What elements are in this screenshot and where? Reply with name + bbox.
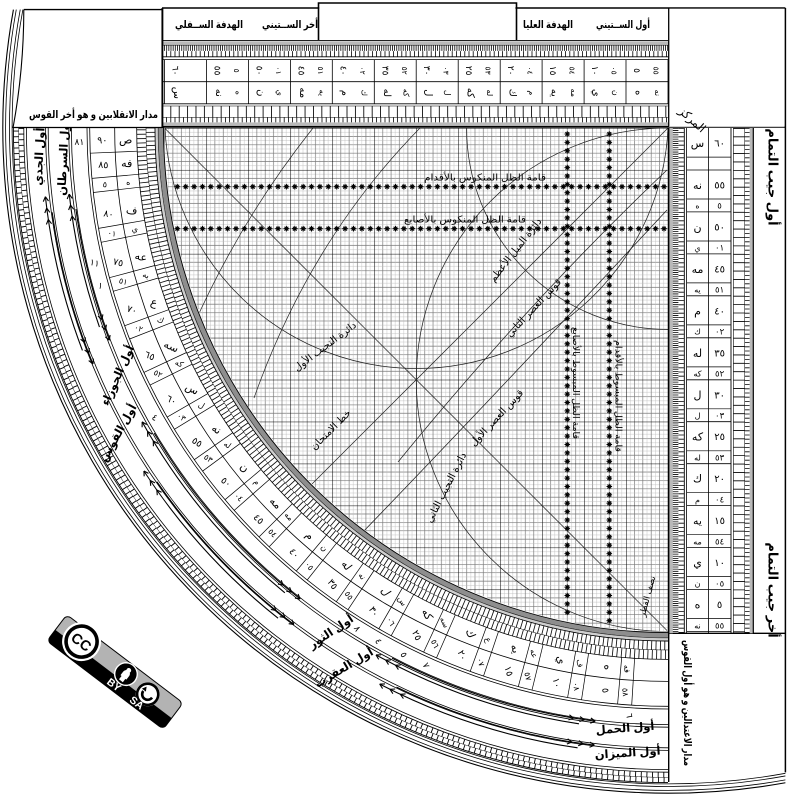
svg-text:٠١: ٠١ (107, 228, 117, 238)
svg-text:٤٥: ٤٥ (714, 264, 725, 275)
svg-text:٥٢: ٥٢ (400, 67, 409, 75)
svg-text:ل: ل (695, 412, 701, 421)
svg-text:٠٤: ٠٤ (715, 494, 724, 504)
svg-text:٤٠: ٤٠ (714, 306, 725, 317)
svg-text:كه: كه (693, 370, 701, 379)
svg-text:٩٠: ٩٠ (97, 135, 107, 146)
svg-text:ي: ي (693, 558, 702, 570)
svg-text:ه: ه (234, 91, 243, 95)
svg-text:م: م (527, 90, 536, 95)
svg-text:مدار الانقلابين و هو أخر القوس: مدار الانقلابين و هو أخر القوس (29, 107, 158, 121)
svg-text:٠٣: ٠٣ (715, 411, 725, 421)
svg-text:٦٠: ٦٠ (714, 139, 725, 150)
svg-text:ف: ف (575, 658, 585, 668)
svg-text:قامة الظل المبسوط بالأصابع: قامة الظل المبسوط بالأصابع (571, 327, 582, 439)
svg-text:أخر جيب التمام: أخر جيب التمام (765, 542, 782, 637)
svg-text:٣٠: ٣٠ (714, 390, 725, 401)
svg-text:٥: ٥ (632, 68, 642, 73)
svg-text:٥٣: ٥٣ (715, 453, 725, 463)
svg-text:١٥: ١٥ (548, 66, 558, 76)
svg-text:ه: ه (695, 600, 701, 612)
svg-text:ك: ك (694, 328, 701, 337)
svg-text:ه: ه (695, 202, 699, 211)
svg-text:ف: ف (125, 204, 138, 218)
svg-text:نه: نه (213, 89, 224, 97)
svg-text:قامة الظل المنكوس بالأصابع: قامة الظل المنكوس بالأصابع (404, 214, 526, 226)
svg-text:ن: ن (255, 89, 266, 96)
svg-text:١٠: ١٠ (590, 66, 600, 76)
svg-text:٥٥: ٥٥ (715, 620, 724, 630)
svg-text:له: له (485, 89, 494, 96)
svg-text:١٠: ١٠ (550, 677, 563, 689)
svg-text:ي: ي (591, 89, 602, 97)
svg-text:٢٥: ٢٥ (714, 432, 725, 443)
svg-text:٠٥: ٠٥ (610, 67, 619, 75)
svg-text:م: م (694, 306, 701, 318)
svg-text:كه: كه (692, 432, 704, 444)
svg-text:٨٥: ٨٥ (98, 160, 109, 172)
svg-text:له: له (693, 348, 702, 360)
svg-text:نه: نه (694, 621, 701, 630)
svg-text:٥: ٥ (102, 180, 107, 189)
svg-text:٥٥: ٥٥ (213, 66, 223, 76)
svg-text:ك: ك (359, 90, 368, 97)
svg-text:مه: مه (693, 537, 702, 546)
svg-text:أخر الســتيني: أخر الســتيني (262, 17, 318, 31)
svg-text:الهدفة العليا: الهدفة العليا (523, 19, 573, 31)
svg-text:٥٥: ٥٥ (714, 181, 725, 192)
svg-text:٥٣: ٥٣ (484, 67, 493, 75)
svg-text:٦: ٦ (624, 713, 634, 719)
svg-text:٥٨: ٥٨ (620, 688, 630, 698)
svg-text:٥٠: ٥٠ (254, 66, 264, 76)
svg-text:كه: كه (401, 89, 410, 97)
svg-text:ه: ه (126, 178, 131, 187)
svg-text:٥٤: ٥٤ (715, 536, 724, 546)
svg-text:٣٠: ٣٠ (422, 66, 432, 76)
svg-text:أول جيب التمام: أول جيب التمام (765, 128, 782, 225)
svg-text:٤٥: ٤٥ (296, 66, 306, 76)
svg-text:مه: مه (692, 264, 704, 276)
svg-text:م: م (339, 90, 350, 96)
svg-text:١٠: ١٠ (714, 558, 725, 569)
svg-text:٣٥: ٣٥ (380, 66, 390, 76)
svg-text:٥٢: ٥٢ (715, 369, 725, 379)
svg-text:قامة الظل المنكوس بالأقدام: قامة الظل المنكوس بالأقدام (424, 172, 546, 184)
svg-text:٢٠: ٢٠ (506, 66, 516, 76)
svg-text:س: س (171, 87, 182, 99)
svg-text:٠١: ٠١ (715, 243, 724, 253)
svg-text:مدار الاعتدالين و هو أول القوس: مدار الاعتدالين و هو أول القوس (681, 640, 695, 766)
svg-text:ي: ي (694, 244, 700, 253)
svg-text:ن: ن (611, 90, 620, 96)
svg-text:أول الســتيني: أول الســتيني (596, 17, 650, 31)
svg-text:ن: ن (695, 579, 701, 588)
svg-text:نه: نه (653, 90, 662, 97)
svg-text:الهدفة الســفلي: الهدفة الســفلي (175, 19, 243, 31)
svg-text:٥: ٥ (717, 600, 722, 611)
svg-text:يه: يه (693, 516, 702, 528)
svg-text:ه: ه (633, 90, 644, 95)
svg-text:٥١: ٥١ (316, 67, 325, 75)
svg-text:٠٣: ٠٣ (442, 67, 451, 75)
svg-text:٥١: ٥١ (715, 285, 724, 295)
svg-text:قامة الظل المبسوط بالأقدام: قامة الظل المبسوط بالأقدام (613, 340, 624, 452)
svg-text:ك: ك (507, 89, 518, 97)
svg-text:فه: فه (121, 158, 133, 171)
svg-text:ل: ل (694, 390, 702, 402)
svg-text:٥٠: ٥٠ (714, 222, 725, 233)
svg-text:يه: يه (549, 89, 560, 97)
svg-text:٠٢: ٠٢ (358, 67, 367, 75)
svg-text:٢٥: ٢٥ (464, 66, 474, 76)
svg-text:م: م (695, 495, 700, 504)
svg-text:نه: نه (693, 180, 702, 192)
svg-text:مه: مه (569, 89, 578, 98)
svg-text:ن: ن (693, 222, 701, 234)
svg-text:٥٤: ٥٤ (568, 67, 577, 75)
svg-text:ل: ل (423, 89, 434, 96)
svg-text:٨٠: ٨٠ (103, 208, 115, 220)
svg-text:له: له (381, 89, 392, 97)
svg-text:٠٤: ٠٤ (526, 67, 535, 75)
svg-text:يه: يه (694, 286, 701, 295)
svg-text:٠١: ٠١ (274, 67, 283, 75)
svg-text:٠٥: ٠٥ (715, 578, 724, 588)
svg-text:فه: فه (622, 664, 632, 673)
svg-text:٠٢: ٠٢ (715, 327, 725, 337)
svg-text:ص: ص (119, 134, 133, 146)
svg-text:٤٠: ٤٠ (338, 66, 348, 76)
svg-text:٦٠: ٦٠ (171, 66, 181, 76)
svg-text:ي: ي (275, 90, 284, 96)
svg-text:٣٥: ٣٥ (714, 348, 725, 359)
svg-text:مه: مه (297, 87, 308, 98)
svg-text:ك: ك (693, 474, 702, 486)
svg-text:٨١: ٨١ (74, 137, 84, 147)
svg-text:كه: كه (465, 88, 476, 98)
svg-text:١٥: ١٥ (714, 516, 725, 527)
svg-text:س: س (691, 138, 704, 150)
svg-text:يه: يه (317, 90, 326, 97)
svg-text:ل: ل (443, 90, 452, 96)
svg-text:٥: ٥ (717, 201, 722, 211)
svg-text:٢٠: ٢٠ (714, 474, 725, 485)
svg-text:له: له (694, 454, 701, 463)
svg-text:٥٥: ٥٥ (652, 67, 661, 75)
svg-text:٥: ٥ (232, 69, 241, 73)
